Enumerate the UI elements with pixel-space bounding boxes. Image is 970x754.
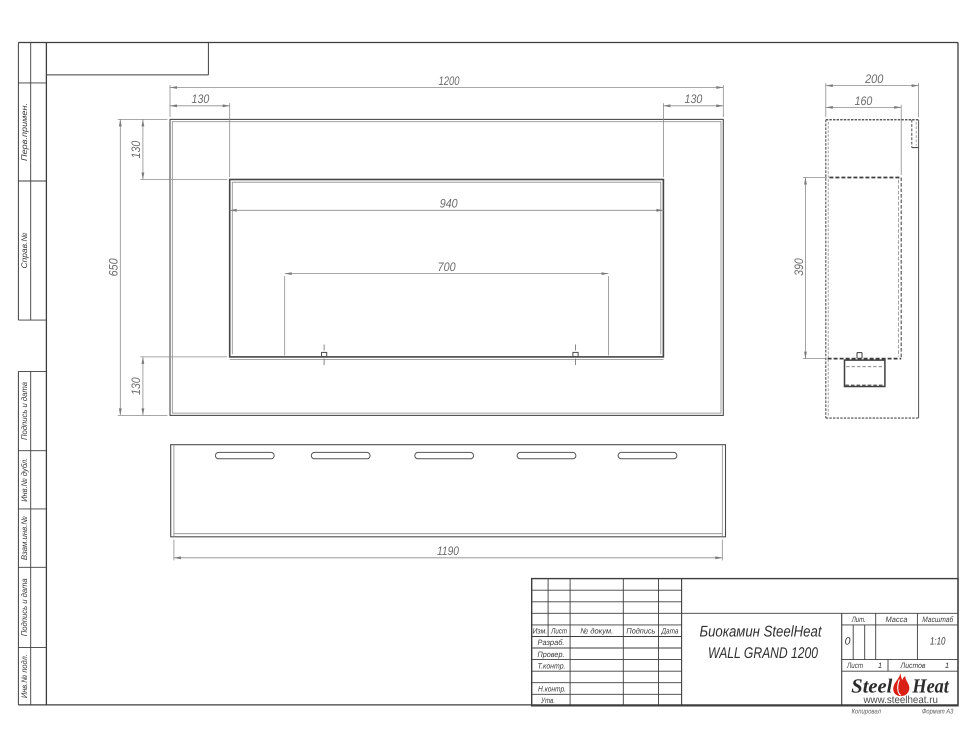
svg-text:Лит.: Лит. [851,615,866,624]
svg-text:1: 1 [878,661,882,670]
svg-text:Взам.инв.№: Взам.инв.№ [20,516,29,560]
svg-text:130: 130 [685,92,703,106]
svg-text:390: 390 [792,258,806,276]
svg-text:Масштаб: Масштаб [922,615,954,624]
svg-text:WALL GRAND 1200: WALL GRAND 1200 [708,645,818,662]
svg-text:130: 130 [129,141,143,159]
svg-text:Листов: Листов [900,661,926,670]
svg-text:Биокамин SteelHeat: Биокамин SteelHeat [700,623,823,640]
svg-text:Подпись: Подпись [626,627,655,636]
svg-text:Н.контр.: Н.контр. [538,685,566,694]
svg-text:Heat: Heat [911,676,950,698]
svg-text:Перв.примен.: Перв.примен. [20,103,29,161]
svg-text:Steel: Steel [851,676,892,698]
svg-text:№ докум.: № докум. [580,627,613,636]
svg-text:Т.контр.: Т.контр. [538,661,566,670]
svg-text:1: 1 [945,661,949,670]
svg-text:Копировал: Копировал [851,708,881,715]
svg-text:0: 0 [845,636,851,648]
svg-text:160: 160 [855,94,873,108]
svg-text:Лист: Лист [550,627,567,636]
svg-text:Провер.: Провер. [538,650,565,659]
svg-text:Справ.№: Справ.№ [20,232,29,268]
svg-text:1:10: 1:10 [930,636,946,648]
svg-text:Дата: Дата [661,627,679,636]
svg-text:700: 700 [438,260,456,274]
svg-text:1200: 1200 [439,74,460,88]
svg-text:Инв.№ дубл.: Инв.№ дубл. [20,458,29,502]
svg-text:940: 940 [440,197,458,211]
svg-text:650: 650 [107,258,121,276]
svg-text:1190: 1190 [437,544,459,558]
svg-text:Изм.: Изм. [533,627,548,636]
svg-text:Разраб.: Разраб. [538,638,565,647]
svg-text:www.steelheat.ru: www.steelheat.ru [863,695,939,706]
svg-text:Лист: Лист [846,661,863,670]
svg-text:Подпись и дата: Подпись и дата [20,382,29,440]
svg-text:130: 130 [192,92,210,106]
svg-text:Утв.: Утв. [540,696,555,705]
svg-text:Формат А3: Формат А3 [922,708,954,715]
svg-text:Подпись и дата: Подпись и дата [20,578,29,636]
svg-text:200: 200 [864,72,883,86]
svg-text:Масса: Масса [886,615,909,624]
svg-text:Инв.№ подл.: Инв.№ подл. [20,654,29,698]
svg-text:130: 130 [129,377,143,395]
